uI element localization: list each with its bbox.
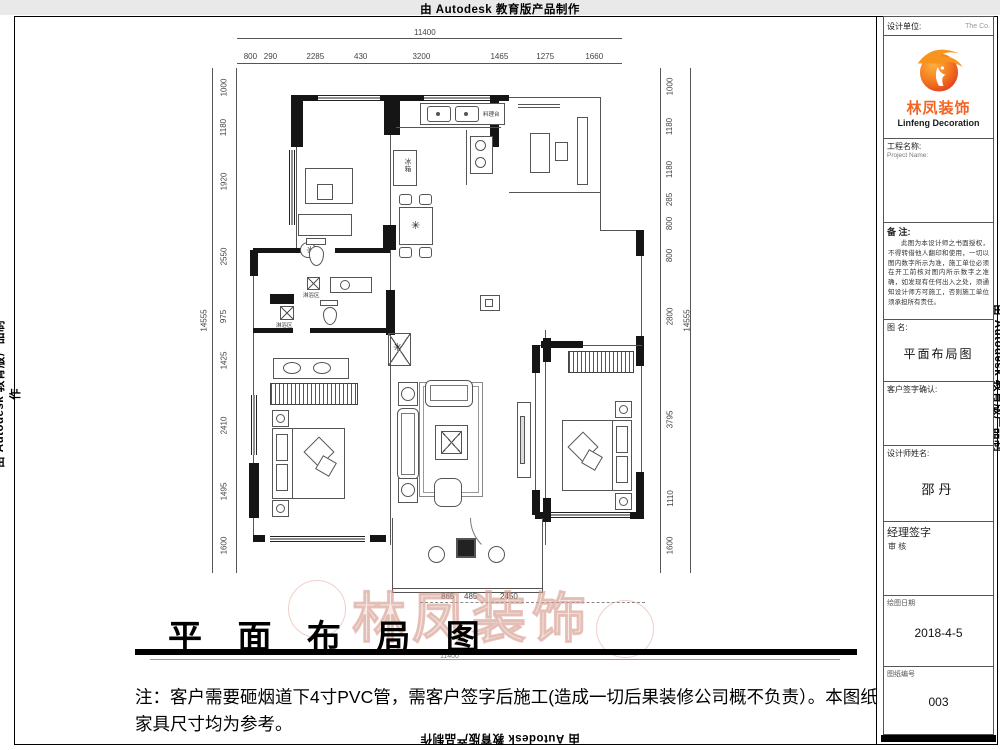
fridge-label: 冰箱: [401, 158, 411, 173]
wall-pillar: [291, 95, 303, 147]
toilet-bowl: [309, 246, 324, 266]
toilet-tank: [320, 300, 338, 306]
table-plant-icon: ✳: [411, 221, 420, 232]
vanity: [330, 277, 372, 293]
counter-label: 料理台: [483, 110, 500, 118]
washer: [530, 133, 550, 173]
wall-pillar: [532, 490, 540, 515]
wall-line: [600, 192, 601, 230]
wall-line: [600, 230, 640, 231]
wall-pillar: [636, 472, 644, 512]
wall-pillar: [630, 512, 644, 519]
pillow: [276, 464, 288, 491]
hall-cabinet-inner: [485, 299, 493, 307]
shelf: [577, 117, 588, 185]
wardrobe: [270, 383, 358, 405]
cabinet: [298, 214, 352, 236]
washing-machine: [280, 306, 294, 320]
lamp-icon: [276, 504, 285, 513]
wall-pillar: [370, 535, 386, 542]
sofa-cushion: [401, 413, 415, 475]
wall: [335, 248, 390, 253]
dresser-mirror-icon: [283, 362, 301, 374]
loveseat-cushion: [430, 385, 468, 401]
window: [251, 395, 257, 455]
cabinet: [555, 142, 568, 161]
pillow: [616, 456, 628, 483]
wall-pillar: [386, 290, 395, 335]
lamp-icon: [401, 387, 415, 401]
wardrobe: [568, 351, 634, 373]
window: [318, 95, 380, 101]
cad-floorplan-sheet: { "sheet": { "autodesk_credit": "由 Autod…: [0, 0, 1000, 750]
wall-pillar: [636, 230, 644, 256]
basin-icon: [340, 280, 350, 290]
dining-chair: [419, 194, 432, 205]
lamp-icon: [401, 483, 415, 497]
wall-pillar: [543, 338, 551, 362]
armchair: [434, 478, 462, 507]
dining-chair: [399, 247, 412, 258]
wall-pillar: [384, 95, 400, 135]
title-underline-thin: [150, 659, 840, 660]
balcony-wall: [509, 97, 601, 98]
lamp-icon: [619, 405, 628, 414]
wall-pillar: [270, 294, 294, 304]
counter-edge: [466, 130, 467, 185]
bed-line: [292, 429, 293, 498]
stool: [488, 546, 505, 563]
dining-chair: [419, 247, 432, 258]
lamp-icon: [619, 497, 628, 506]
balcony-wall: [509, 192, 601, 193]
dining-chair: [399, 194, 412, 205]
window: [424, 95, 498, 101]
shower-label: 淋浴区: [303, 291, 320, 299]
dresser-mirror-icon: [313, 362, 331, 374]
wall-pillar: [383, 225, 396, 250]
shower-label: 淋浴区: [276, 321, 293, 329]
bed-line: [612, 421, 613, 490]
title-underline-bar: [135, 649, 857, 655]
toilet-tank: [306, 238, 326, 245]
stool: [428, 546, 445, 563]
pillow: [276, 434, 288, 461]
wall: [310, 328, 390, 333]
plant-icon: ✳: [393, 343, 402, 354]
lamp-icon: [276, 414, 285, 423]
drying-rack: [518, 104, 560, 105]
wall-pillar: [532, 345, 540, 373]
coffee-table-top: [441, 431, 462, 454]
tv: [520, 416, 525, 464]
wall-pillar: [636, 336, 644, 366]
pillow: [616, 426, 628, 453]
window: [289, 150, 295, 225]
burner-icon: [475, 157, 486, 168]
sink-drain-icon: [436, 112, 440, 116]
toilet-bowl: [323, 307, 337, 325]
construction-note: 注：客户需要砸烟道下4寸PVC管，需客户签字后施工(造成一切后果装修公司概不负责…: [135, 684, 880, 738]
shower-tray: [307, 277, 320, 290]
wall-pillar: [249, 463, 259, 518]
wall-line: [296, 147, 297, 250]
balcony-wall: [600, 97, 601, 193]
window: [547, 512, 630, 518]
wall-pillar: [543, 498, 551, 522]
desk-chair: [317, 184, 333, 200]
counter-edge: [396, 127, 501, 128]
window: [270, 536, 365, 542]
wall-pillar: [250, 250, 258, 276]
door-mat: [456, 538, 476, 558]
drying-rack: [518, 107, 560, 108]
wall-pillar: [253, 535, 265, 542]
burner-icon: [475, 140, 486, 151]
sink-drain-icon: [464, 112, 468, 116]
